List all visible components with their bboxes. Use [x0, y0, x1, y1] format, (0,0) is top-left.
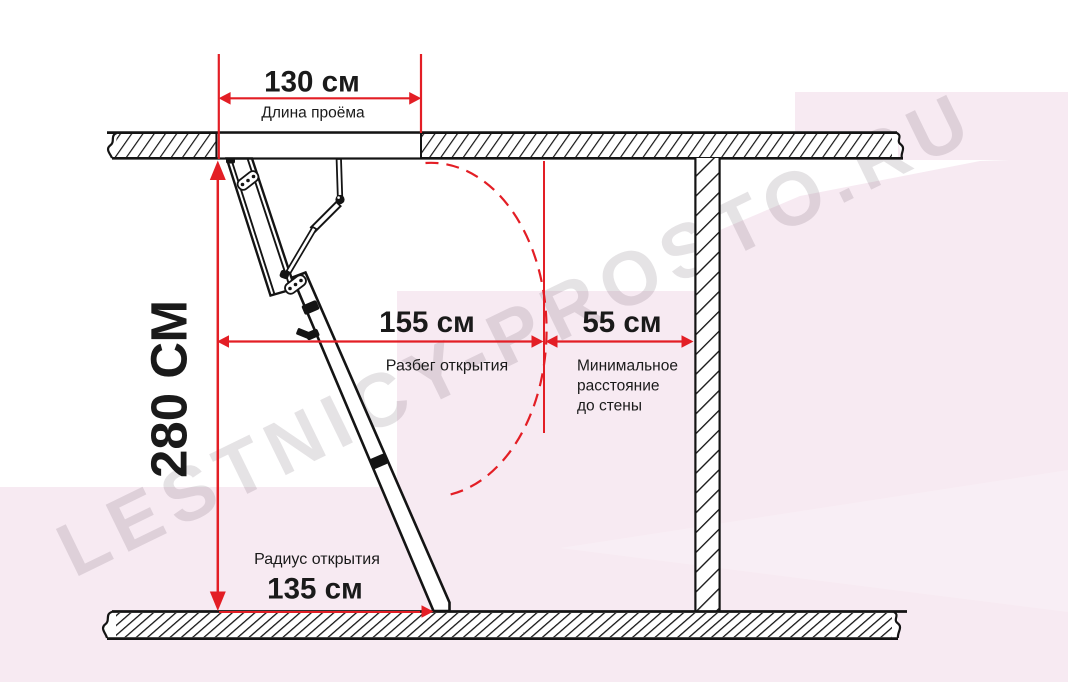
svg-text:расстояние: расстояние [577, 378, 660, 395]
svg-text:280 СМ: 280 СМ [141, 300, 198, 478]
svg-text:Длина проёма: Длина проёма [261, 105, 365, 122]
svg-text:135 см: 135 см [267, 573, 363, 606]
svg-text:до стены: до стены [577, 398, 642, 415]
svg-text:Минимальное: Минимальное [577, 358, 678, 375]
svg-text:55 см: 55 см [582, 306, 661, 339]
svg-text:155 см: 155 см [379, 306, 475, 339]
svg-text:130 см: 130 см [264, 66, 360, 99]
svg-text:Разбег открытия: Разбег открытия [386, 358, 508, 375]
svg-text:Радиус открытия: Радиус открытия [254, 551, 380, 568]
